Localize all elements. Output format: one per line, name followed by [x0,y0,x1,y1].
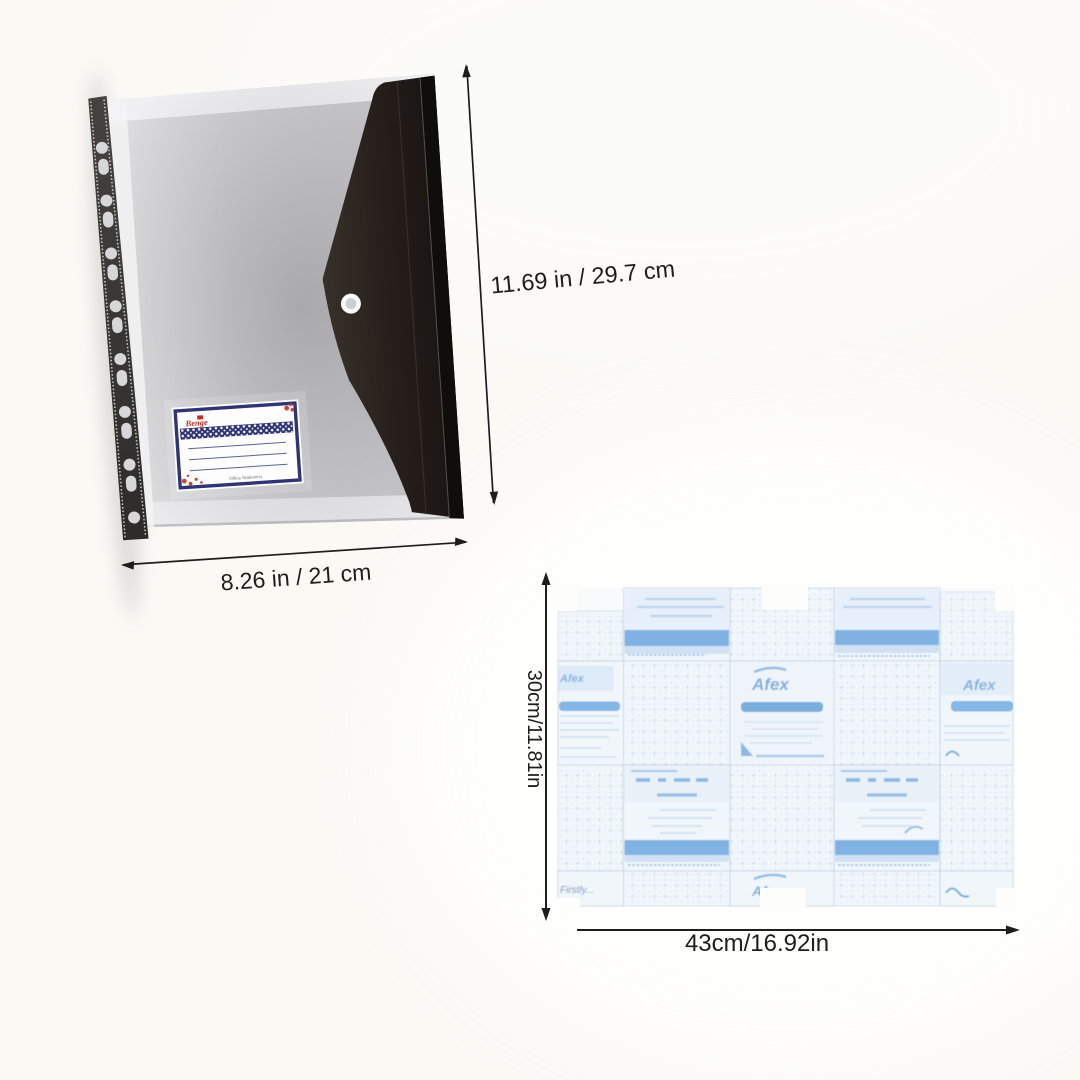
svg-text:Afex: Afex [751,675,790,694]
svg-text:Afex: Afex [962,677,996,694]
svg-text:Firstly...: Firstly... [560,885,594,896]
svg-text:Benge: Benge [184,417,208,429]
svg-text:30cm/11.81in: 30cm/11.81in [523,670,545,789]
svg-text:Afex: Afex [559,673,585,685]
svg-text:43cm/16.92in: 43cm/16.92in [685,930,829,957]
